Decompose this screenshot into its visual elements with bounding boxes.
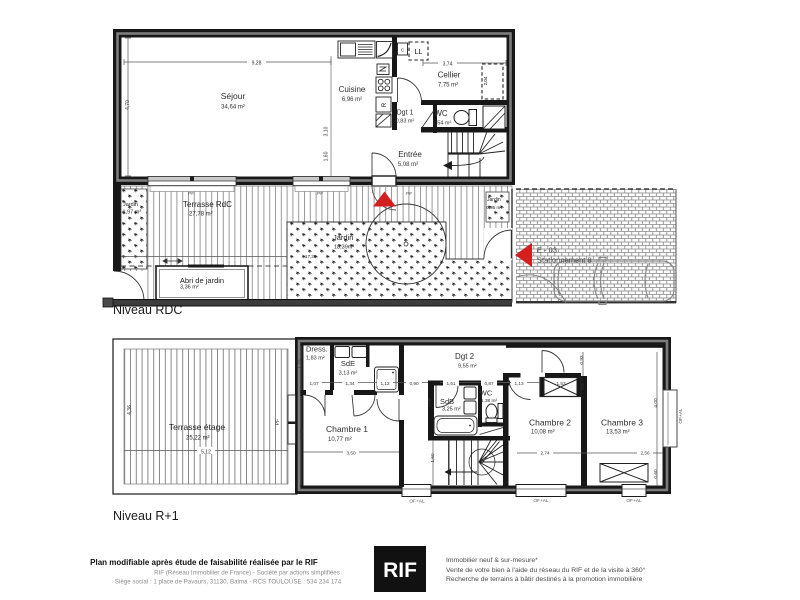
svg-text:Siège social : 1 place de Pava: Siège social : 1 place de Pavaurs, 31130… (115, 579, 342, 586)
svg-text:Dress.: Dress. (306, 345, 328, 354)
svg-text:0,6: 0,6 (580, 383, 585, 390)
svg-text:1,60: 1,60 (430, 453, 435, 463)
svg-text:OF+AL: OF+AL (678, 408, 684, 424)
svg-text:0,83 m²: 0,83 m² (396, 119, 415, 125)
svg-text:Cuisine: Cuisine (339, 85, 366, 94)
svg-text:Terrasse RdC: Terrasse RdC (183, 200, 232, 209)
svg-text:2,56: 2,56 (640, 451, 650, 456)
svg-text:LL: LL (415, 49, 423, 56)
svg-text:0,87: 0,87 (484, 381, 494, 386)
svg-text:10,08 m²: 10,08 m² (531, 430, 555, 436)
svg-text:Plan modifiable après étude de: Plan modifiable après étude de faisabili… (90, 558, 318, 567)
svg-text:3,10: 3,10 (324, 126, 330, 136)
svg-text:9,28: 9,28 (252, 61, 262, 67)
svg-text:1,97 m²: 1,97 m² (123, 210, 142, 216)
svg-text:Dgt 2: Dgt 2 (455, 352, 475, 361)
svg-text:3,08: 3,08 (299, 429, 304, 439)
svg-text:Immobilier neuf & sur-mesure*: Immobilier neuf & sur-mesure* (446, 557, 538, 564)
svg-text:4,70: 4,70 (125, 100, 131, 110)
svg-text:Stationnement 8: Stationnement 8 (537, 256, 592, 265)
svg-text:5,08 m²: 5,08 m² (398, 162, 418, 168)
svg-text:1,12: 1,12 (380, 381, 390, 386)
svg-text:18,39m²: 18,39m² (334, 245, 354, 251)
svg-text:Séjour: Séjour (221, 91, 246, 101)
svg-text:Entrée: Entrée (398, 150, 422, 159)
svg-text:0,95 m²: 0,95 m² (487, 205, 503, 210)
svg-text:Chambre 1: Chambre 1 (326, 424, 368, 434)
svg-text:3,50: 3,50 (346, 451, 356, 456)
svg-text:4,00: 4,00 (653, 398, 658, 408)
svg-text:1,83 m²: 1,83 m² (306, 356, 325, 362)
svg-text:3,25 m²: 3,25 m² (442, 407, 461, 413)
svg-text:9,55 m²: 9,55 m² (458, 364, 477, 370)
svg-text:3,74: 3,74 (443, 62, 453, 68)
svg-text:1,61: 1,61 (446, 381, 456, 386)
svg-text:Chambre 3: Chambre 3 (601, 418, 643, 428)
svg-text:SdB: SdB (440, 397, 454, 406)
svg-text:E - 03: E - 03 (537, 246, 557, 255)
svg-text:Niveau RDC: Niveau RDC (113, 303, 182, 317)
svg-text:SdE: SdE (341, 359, 355, 368)
svg-text:RIF (Réseau Immobilier de Fran: RIF (Réseau Immobilier de France) - Soci… (154, 570, 340, 577)
svg-text:1,34: 1,34 (345, 381, 355, 386)
svg-text:2,74: 2,74 (540, 451, 550, 456)
svg-text:1,54 m²: 1,54 m² (433, 121, 452, 127)
svg-text:Vente de votre bien à l'aide d: Vente de votre bien à l'aide du réseau d… (446, 566, 646, 574)
svg-text:WC: WC (480, 389, 493, 398)
svg-text:Jardin: Jardin (123, 202, 138, 208)
svg-text:1,60: 1,60 (324, 151, 330, 161)
svg-text:Jardin: Jardin (487, 197, 501, 203)
svg-text:1,13: 1,13 (514, 381, 524, 386)
svg-text:10,77 m²: 10,77 m² (328, 437, 352, 443)
svg-text:1,38 m²: 1,38 m² (481, 398, 498, 404)
svg-text:c: c (401, 48, 404, 54)
svg-text:RIF: RIF (383, 559, 417, 582)
svg-text:Niveau R+1: Niveau R+1 (113, 509, 179, 523)
svg-text:OF+AL: OF+AL (626, 498, 642, 504)
svg-text:Terrasse étage: Terrasse étage (169, 422, 225, 432)
svg-text:0,90: 0,90 (409, 381, 419, 386)
svg-text:3,13 m²: 3,13 m² (339, 371, 358, 377)
svg-text:WC: WC (434, 109, 448, 118)
svg-text:34,64 m²: 34,64 m² (221, 105, 245, 111)
svg-text:Jardin: Jardin (333, 233, 353, 242)
svg-text:13,53 m²: 13,53 m² (606, 430, 630, 436)
svg-text:1,72: 1,72 (298, 359, 303, 369)
svg-text:27,78 m²: 27,78 m² (189, 212, 213, 218)
svg-text:PF: PF (188, 191, 194, 197)
svg-text:0,60: 0,60 (653, 469, 658, 479)
svg-text:1,53: 1,53 (556, 381, 566, 386)
svg-text:0,93: 0,93 (579, 355, 584, 365)
svg-text:5,12: 5,12 (201, 450, 211, 456)
svg-text:2,08: 2,08 (427, 398, 432, 408)
svg-text:1,07: 1,07 (309, 381, 319, 386)
svg-text:OF+AL: OF+AL (533, 498, 549, 504)
svg-text:7,75 m²: 7,75 m² (438, 83, 458, 89)
svg-text:17,39: 17,39 (305, 254, 317, 259)
svg-text:2,04: 2,04 (483, 76, 488, 85)
svg-text:25,22 m²: 25,22 m² (186, 436, 210, 442)
svg-text:OF+AL: OF+AL (409, 499, 425, 505)
svg-text:PF: PF (406, 191, 412, 197)
svg-text:R: R (382, 102, 388, 107)
svg-text:6,96 m²: 6,96 m² (342, 97, 362, 103)
svg-text:Chambre 2: Chambre 2 (529, 418, 571, 428)
svg-text:4,36: 4,36 (127, 405, 133, 415)
svg-text:Dgt 1: Dgt 1 (397, 110, 414, 117)
svg-text:Cellier: Cellier (438, 71, 461, 80)
svg-text:Recherche de terrains à bâtir: Recherche de terrains à bâtir destinés à… (446, 576, 643, 583)
svg-text:PF: PF (275, 419, 281, 425)
svg-text:PF: PF (317, 191, 323, 197)
svg-text:3,36 m²: 3,36 m² (180, 285, 199, 291)
